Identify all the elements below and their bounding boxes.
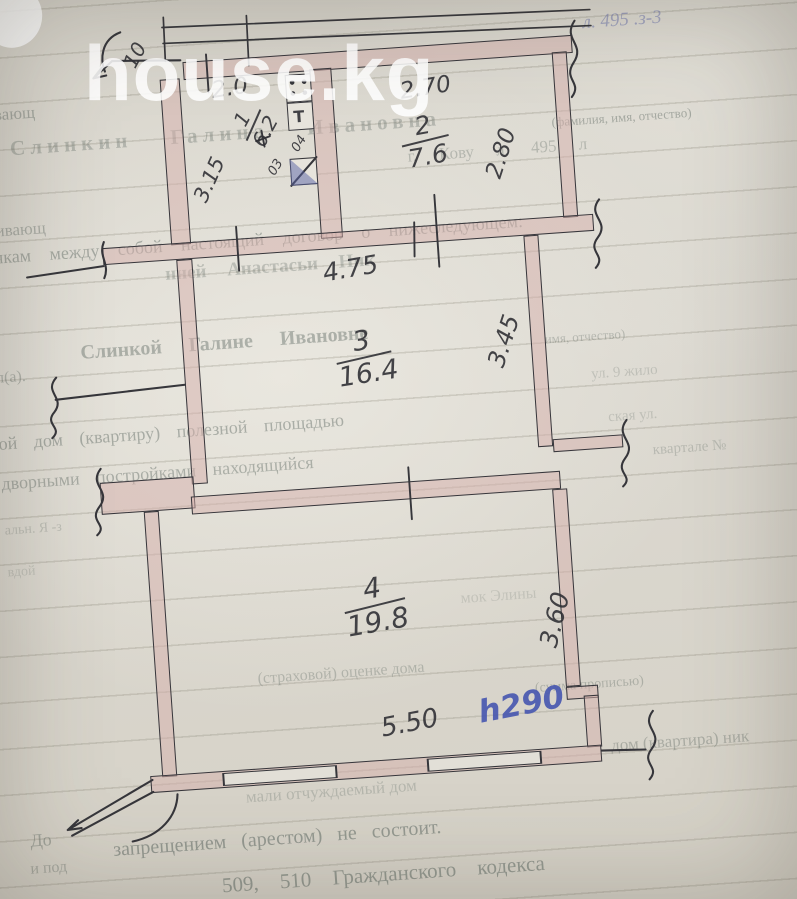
plan-linework	[0, 0, 797, 899]
wall-break-squiggle	[619, 420, 632, 486]
wall-break-squiggle	[645, 711, 658, 779]
wall-end-cap	[102, 242, 107, 278]
wall-break-squiggle	[567, 21, 581, 97]
wall-break-squiggle	[48, 378, 60, 438]
document-page: л. 495 .з-3 нивающ Слинкин Галина Иванов…	[0, 0, 797, 899]
scanned-floor-plan-photo: л. 495 .з-3 нивающ Слинкин Галина Иванов…	[0, 0, 797, 899]
watermark-house-kg: house.kg	[84, 28, 434, 119]
wall-break-squiggle	[591, 199, 604, 267]
wall-edge-line	[27, 266, 104, 277]
wall-break-squiggle	[93, 469, 106, 535]
wall-edge-line	[55, 385, 185, 400]
room-4-label: 4 19.8	[339, 570, 411, 642]
wall-edge-line	[601, 748, 645, 753]
page-content: л. 495 .з-3 нивающ Слинкин Галина Иванов…	[0, 0, 797, 899]
wall-taper-arrow	[65, 780, 156, 836]
room-3-label: 3 16.4	[332, 324, 397, 392]
